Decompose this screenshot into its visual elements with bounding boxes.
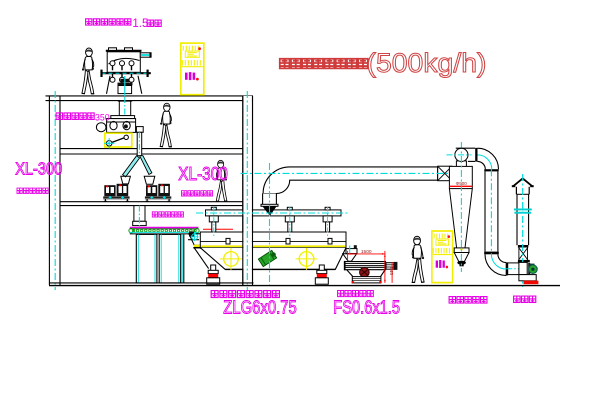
svg-text:1.5: 1.5 (132, 18, 148, 30)
svg-text:XL-300: XL-300 (178, 163, 228, 184)
svg-text:XL-300: XL-300 (15, 158, 62, 178)
svg-text:545: 545 (388, 267, 394, 275)
svg-text:1500: 1500 (361, 249, 372, 255)
svg-text:FS0.6x1.5: FS0.6x1.5 (333, 296, 400, 317)
svg-text:(500kg/h): (500kg/h) (367, 48, 487, 78)
svg-text:350: 350 (95, 112, 110, 122)
svg-text:ZLG6x0.75: ZLG6x0.75 (223, 296, 296, 317)
